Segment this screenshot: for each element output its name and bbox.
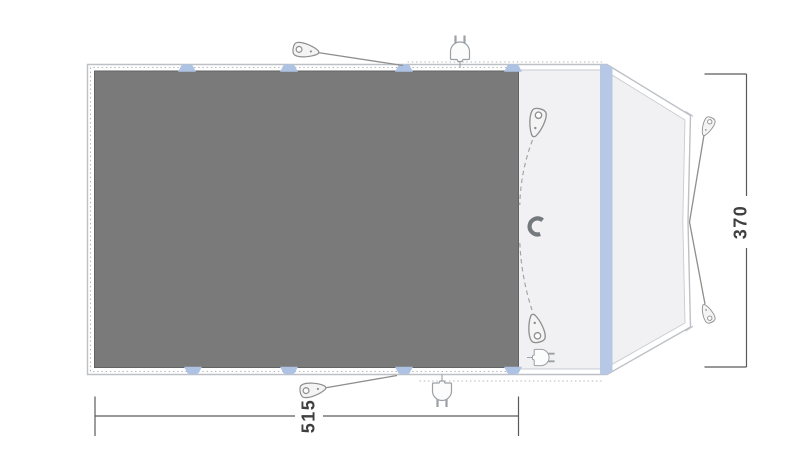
guy-line-top — [318, 53, 404, 66]
tent-floorplan-diagram: 515 370 — [0, 0, 800, 465]
pole-sleeve-strip — [600, 65, 613, 375]
floorplan-drawing — [0, 0, 800, 465]
power-plug-bottom-icon — [433, 375, 452, 408]
guy-peg-top-icon — [292, 41, 320, 59]
groundsheet — [91, 64, 523, 374]
guy-peg-right-top-icon — [699, 115, 717, 137]
guy-line-bottom — [325, 376, 398, 389]
power-plug-top-icon — [451, 36, 470, 69]
groundsheet-floor — [95, 71, 519, 368]
dimension-depth-label: 370 — [731, 205, 752, 240]
guy-lines-right — [690, 135, 706, 304]
guy-peg-right-bottom-icon — [699, 302, 717, 324]
guy-peg-bottom-icon — [299, 381, 327, 399]
dimension-width-label: 515 — [299, 399, 320, 434]
